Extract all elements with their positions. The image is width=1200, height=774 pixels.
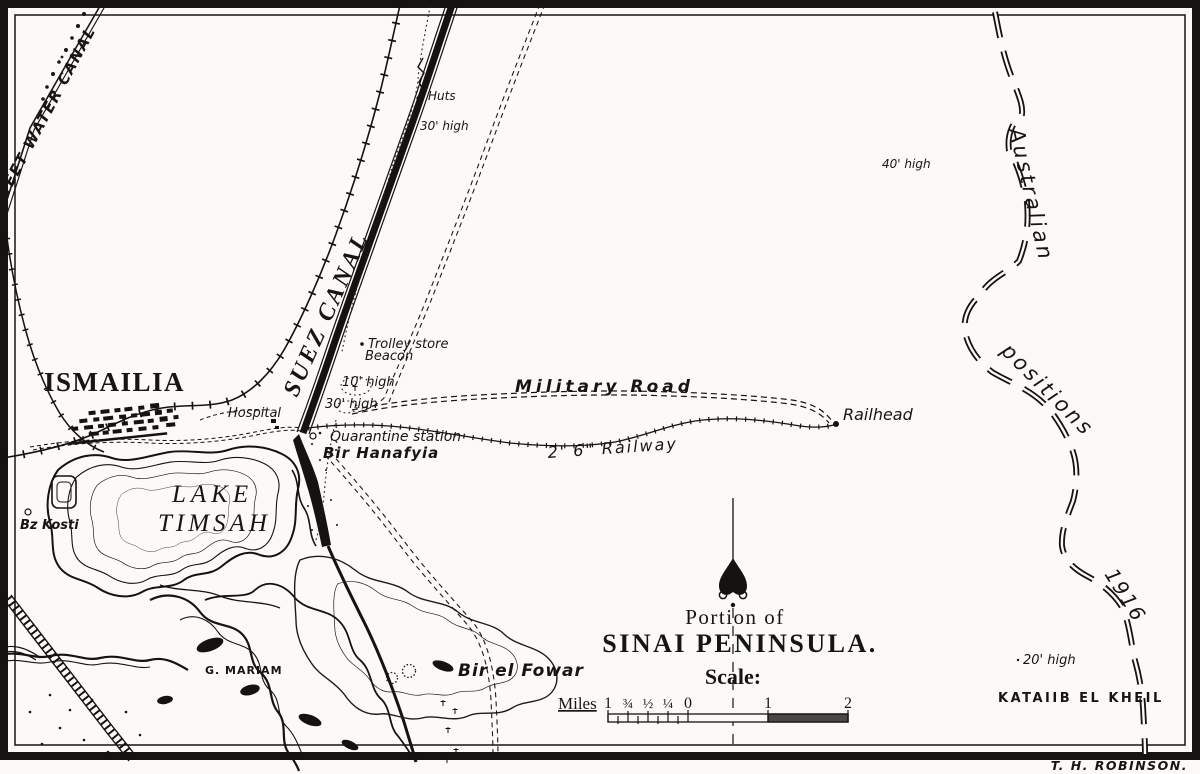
label-lake: LAKE	[171, 481, 253, 508]
label-light-railway: 2' 6" Railway	[547, 434, 678, 462]
track-southeast-dashed	[325, 452, 498, 756]
scale-tick-2: 2	[844, 695, 852, 712]
quarantine-marker	[310, 433, 316, 439]
sinai-map-svg: SWEET WATER CANAL	[0, 0, 1200, 774]
scale-tick-0: 0	[684, 695, 692, 712]
hospital-marker-2	[275, 426, 279, 429]
map-page: SWEET WATER CANAL	[0, 0, 1200, 774]
railway-west-branch	[7, 238, 104, 452]
map-title-line1: Portion of	[685, 605, 785, 629]
trolley-store-marker	[360, 342, 364, 346]
quarantine-marker-dot	[319, 432, 322, 435]
lake-east-lobe	[295, 556, 557, 719]
scale-tick-1r: 1	[764, 695, 772, 712]
label-10-high: 10' high	[342, 375, 395, 390]
label-bz-kosti: Bz Kosti	[20, 518, 79, 533]
label-40-high: 40' high	[882, 157, 931, 171]
scale-unit-label: Miles	[558, 694, 597, 713]
bz-kosti-marker	[25, 509, 31, 515]
label-timsah: TIMSAH	[158, 510, 271, 537]
hospital-marker	[271, 419, 276, 423]
scale-bar: Miles 1 ¾ ½ ¼ 0 1 2	[558, 694, 852, 724]
map-credit: T. H. ROBINSON.	[1051, 758, 1188, 773]
scale-heading: Scale:	[705, 664, 761, 689]
suez-canal-line	[297, 5, 458, 434]
label-g-mariam: G. MARIAM	[205, 664, 283, 677]
label-30-high-north: 30' high	[420, 119, 469, 133]
railhead-marker	[833, 421, 839, 427]
label-positions: positions	[996, 338, 1099, 441]
map-title-line2: SINAI PENINSULA.	[602, 629, 878, 658]
label-bir-hanafyia: Bir Hanafyia	[323, 444, 439, 462]
marsh-dark-blobs	[156, 635, 454, 753]
label-railhead: Railhead	[843, 405, 914, 424]
label-australian: Australian	[1004, 124, 1058, 264]
label-hospital: Hospital	[228, 406, 281, 421]
label-kataiib-el-kheil: KATAIIB EL KHEIL	[998, 691, 1164, 706]
label-quarantine: Quarantine station	[330, 429, 461, 445]
scale-tick-12: ½	[643, 697, 654, 712]
label-30-high-south: 30' high	[325, 397, 378, 412]
scale-tick-34: ¾	[623, 697, 634, 712]
causeway-band	[0, 595, 135, 761]
label-20-high: 20' high	[1023, 653, 1076, 668]
label-ismailia: ISMAILIA	[44, 367, 185, 397]
scale-tick-1l: 1	[604, 695, 612, 712]
scale-tick-14: ¼	[663, 697, 674, 712]
20-high-dot	[1017, 659, 1019, 661]
label-huts: Huts	[428, 89, 456, 103]
label-beacon: Beacon	[365, 349, 413, 364]
label-bir-el-fowar: Bir el Fowar	[458, 661, 585, 681]
label-1916: 1916	[1100, 564, 1152, 627]
label-military-road: Military Road	[515, 377, 694, 397]
